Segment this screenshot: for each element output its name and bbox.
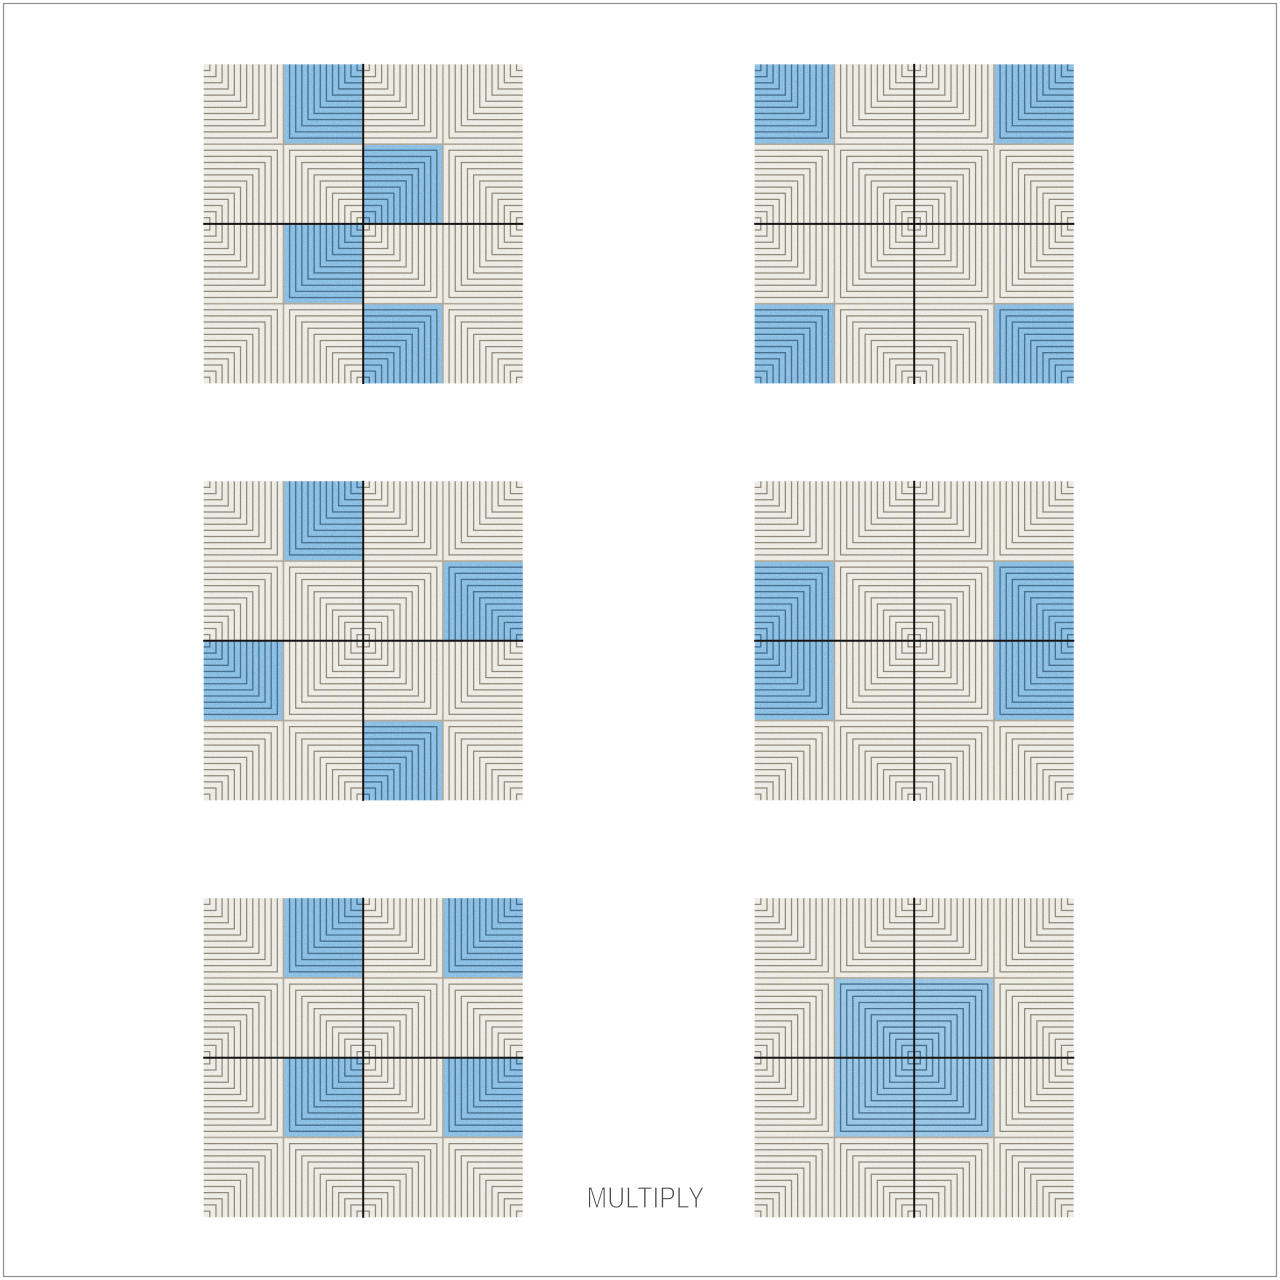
svg-text:MULTIPLY: MULTIPLY: [587, 1180, 705, 1215]
